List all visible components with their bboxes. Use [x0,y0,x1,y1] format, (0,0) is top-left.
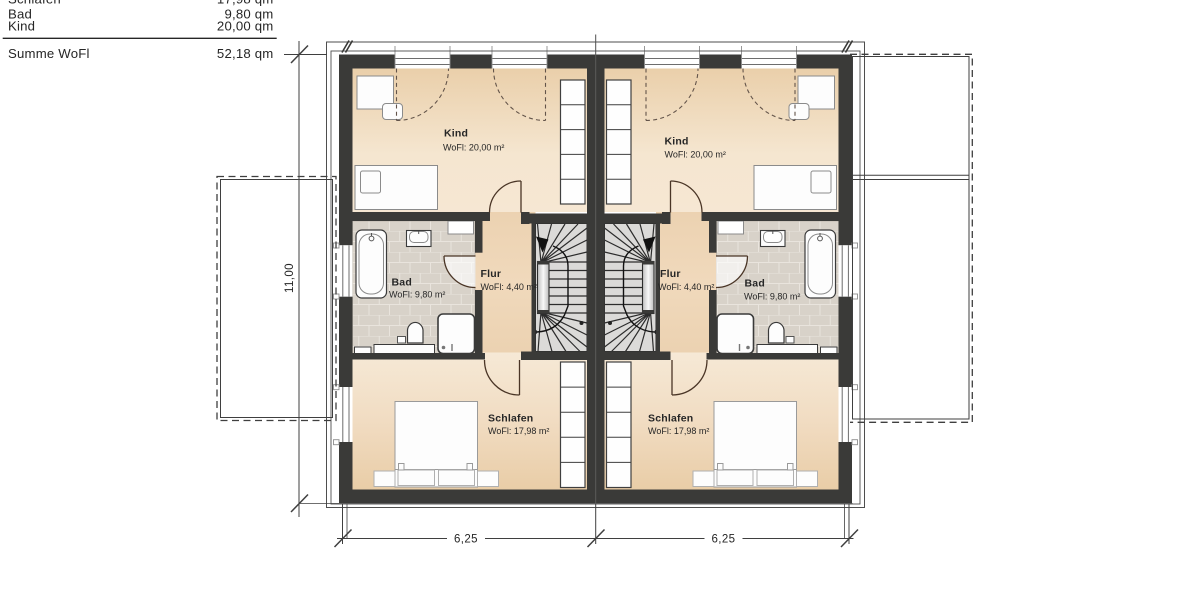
svg-text:WoFl: 17,98 m²: WoFl: 17,98 m² [648,426,709,436]
svg-text:6,25: 6,25 [454,534,478,546]
svg-text:Bad: Bad [745,278,765,290]
svg-text:Schlafen: Schlafen [488,413,533,425]
svg-text:Flur: Flur [660,268,681,280]
svg-text:Kind: Kind [444,128,468,140]
svg-text:WoFl: 17,98 m²: WoFl: 17,98 m² [488,426,549,436]
svg-text:52,18 qm: 52,18 qm [217,46,274,61]
svg-text:Schlafen: Schlafen [648,413,693,425]
svg-text:Bad: Bad [392,277,412,289]
svg-text:Flur: Flur [481,268,502,280]
svg-text:Summe WoFl: Summe WoFl [8,46,90,61]
svg-text:6,25: 6,25 [712,534,736,546]
svg-text:Kind: Kind [665,136,689,148]
svg-text:WoFl: 9,80 m²: WoFl: 9,80 m² [744,292,800,302]
svg-text:WoFl: 4,40 m²: WoFl: 4,40 m² [658,282,714,292]
svg-text:WoFl: 20,00 m²: WoFl: 20,00 m² [443,143,504,153]
svg-text:WoFl: 4,40 m²: WoFl: 4,40 m² [481,282,537,292]
svg-text:20,00 qm: 20,00 qm [217,19,274,34]
svg-text:11,00: 11,00 [284,263,296,293]
svg-text:WoFl: 20,00 m²: WoFl: 20,00 m² [665,150,726,160]
svg-text:WoFl: 9,80 m²: WoFl: 9,80 m² [389,290,445,300]
svg-text:Kind: Kind [8,19,35,34]
